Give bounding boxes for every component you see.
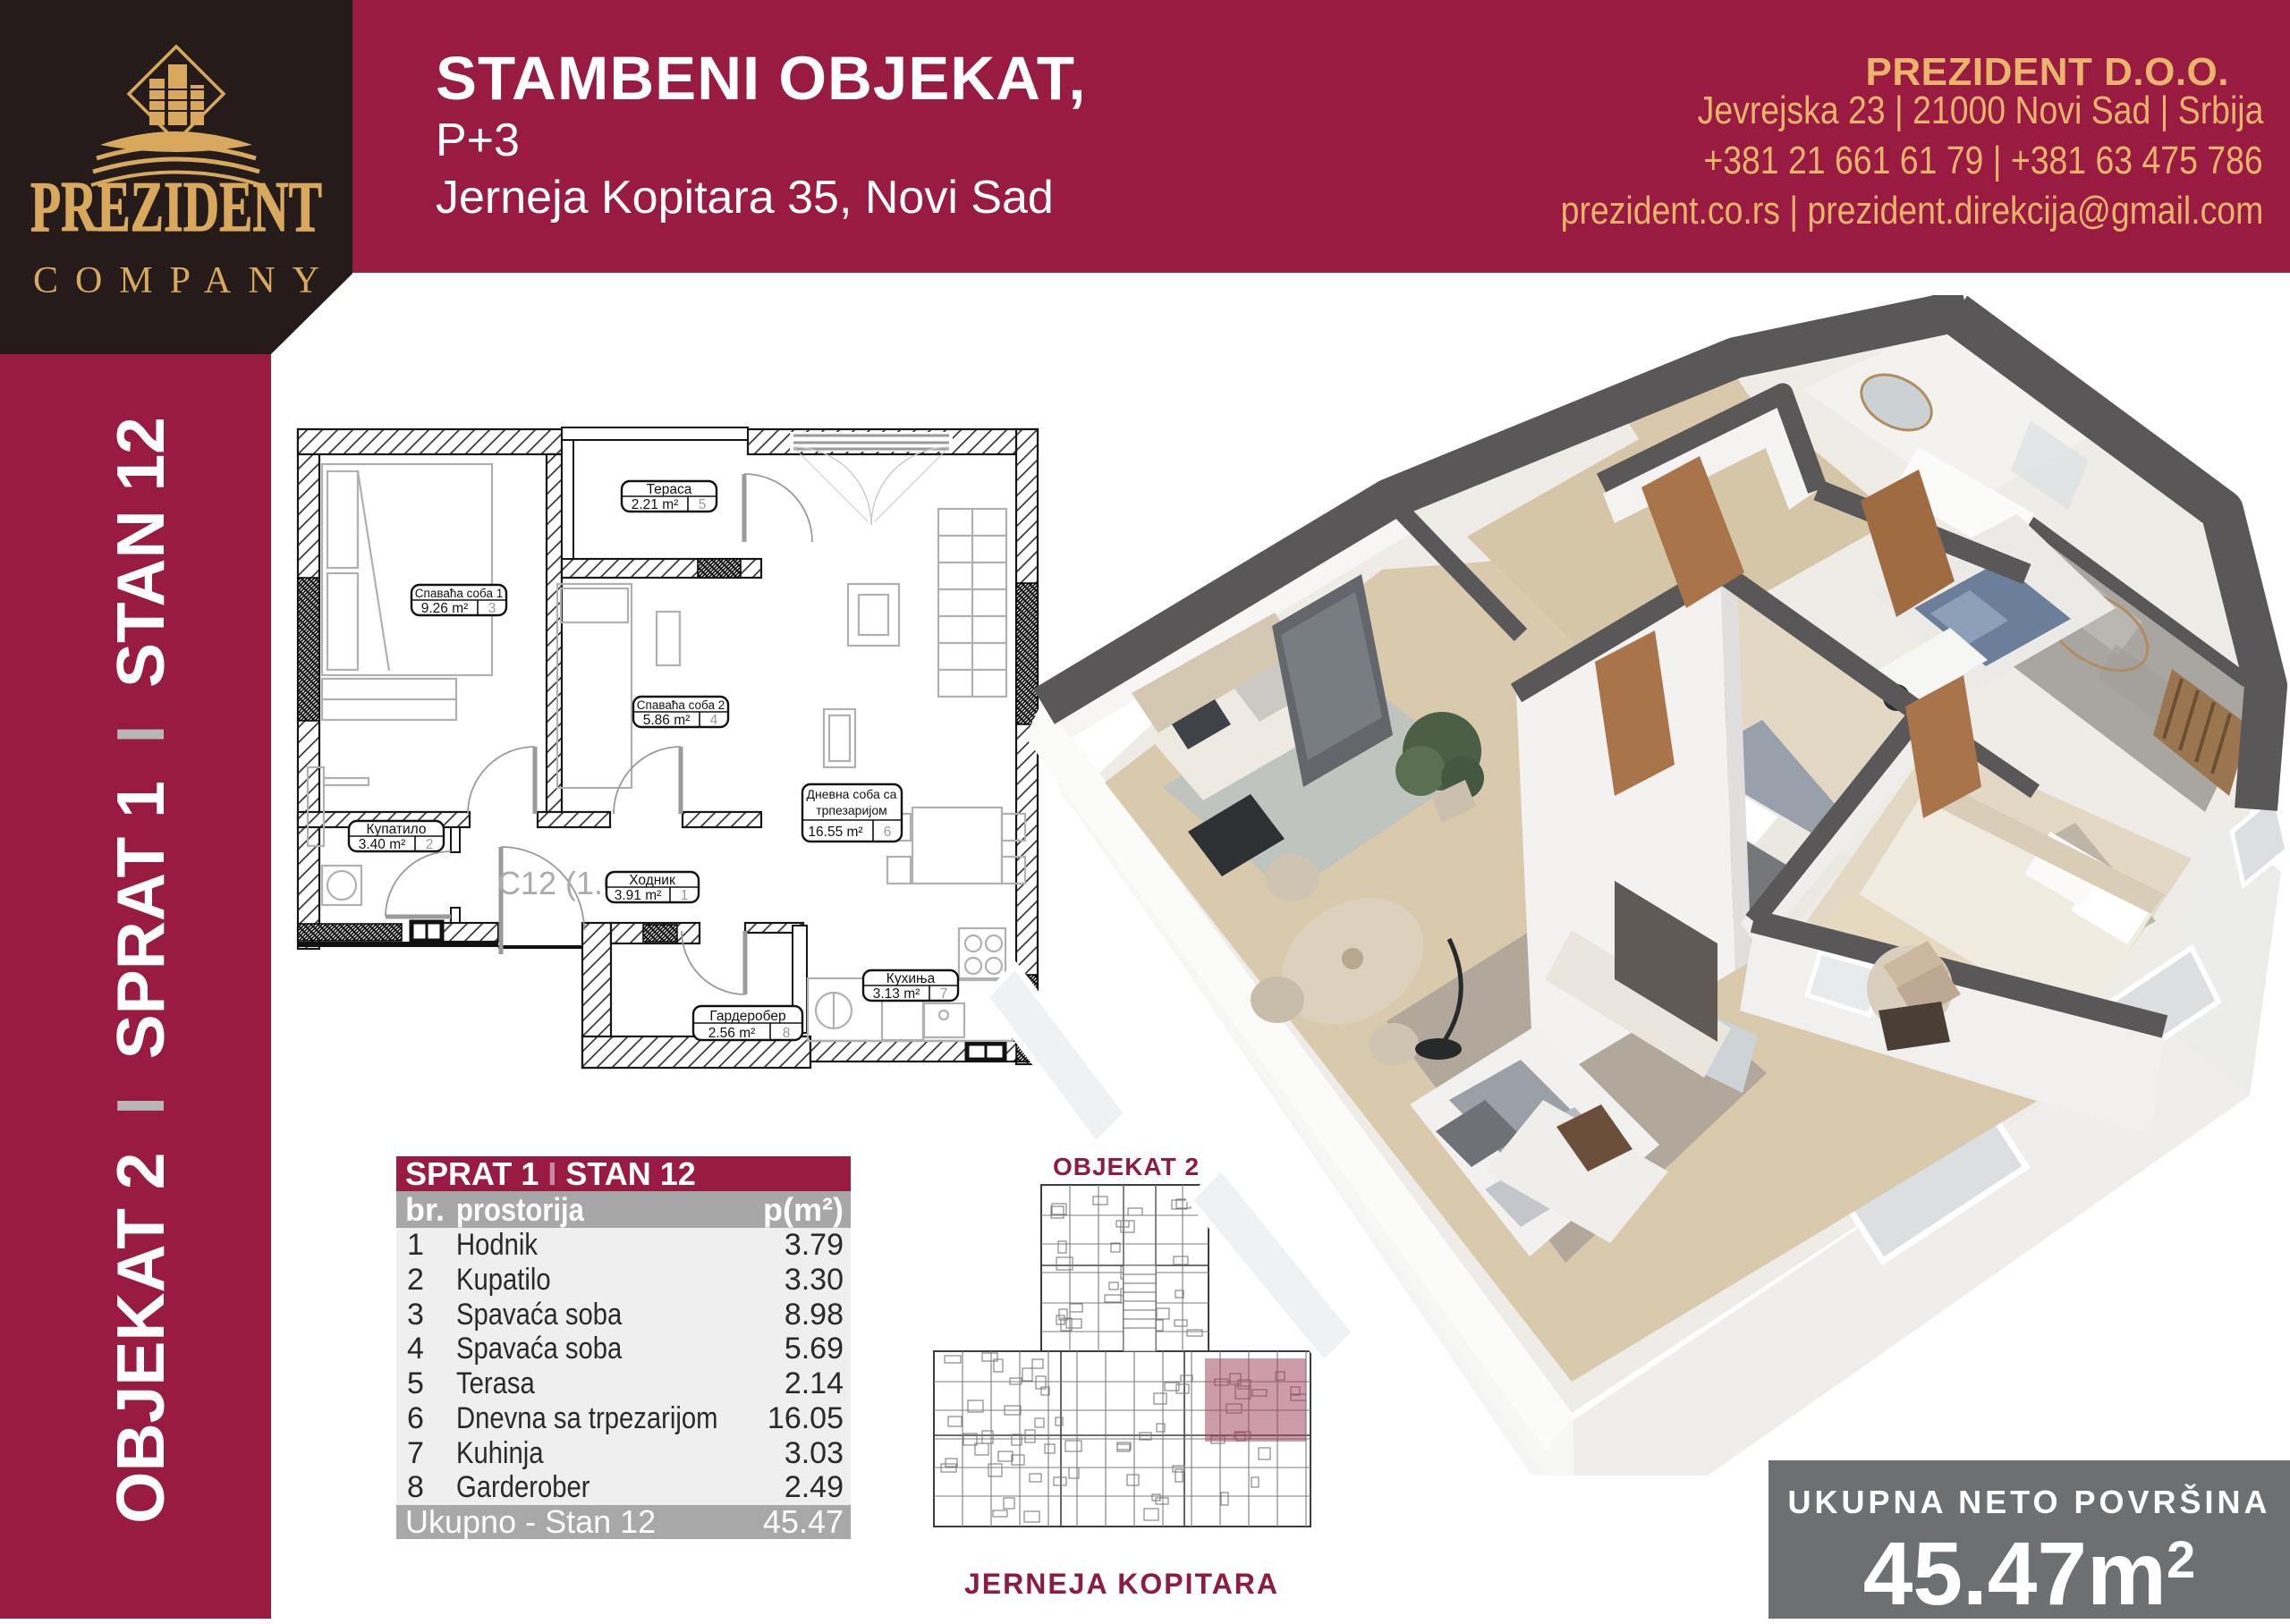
- svg-text:2: 2: [426, 837, 434, 852]
- svg-text:Гардеробер: Гардеробер: [709, 1009, 785, 1024]
- svg-text:7: 7: [940, 986, 948, 1002]
- svg-text:трпезаријом: трпезаријом: [816, 803, 887, 817]
- svg-text:5: 5: [699, 497, 707, 512]
- svg-text:Спаваћа соба 1: Спаваћа соба 1: [415, 587, 503, 600]
- svg-text:Ходник: Ходник: [629, 873, 675, 888]
- svg-text:3: 3: [488, 601, 496, 616]
- svg-text:3.40 m²: 3.40 m²: [359, 837, 406, 852]
- svg-text:16.55 m²: 16.55 m²: [808, 825, 862, 840]
- svg-text:2.21 m²: 2.21 m²: [632, 497, 679, 512]
- svg-text:Спаваћа соба 2: Спаваћа соба 2: [637, 698, 725, 712]
- svg-text:5.86 m²: 5.86 m²: [643, 713, 691, 728]
- svg-text:1: 1: [681, 888, 689, 903]
- svg-text:2.56 m²: 2.56 m²: [708, 1026, 756, 1041]
- svg-text:3.91 m²: 3.91 m²: [615, 888, 662, 903]
- svg-text:Дневна соба са: Дневна соба са: [807, 787, 897, 801]
- svg-text:6: 6: [884, 825, 892, 840]
- svg-text:8: 8: [783, 1026, 791, 1041]
- svg-text:3.13 m²: 3.13 m²: [873, 986, 920, 1002]
- svg-text:Кухиња: Кухиња: [886, 971, 936, 986]
- svg-text:9.26 m²: 9.26 m²: [421, 601, 469, 616]
- svg-text:4: 4: [710, 713, 718, 728]
- svg-text:PREZIDENT: PREZIDENT: [30, 168, 322, 247]
- svg-text:Купатило: Купатило: [366, 822, 426, 837]
- svg-text:Тераса: Тераса: [647, 482, 692, 497]
